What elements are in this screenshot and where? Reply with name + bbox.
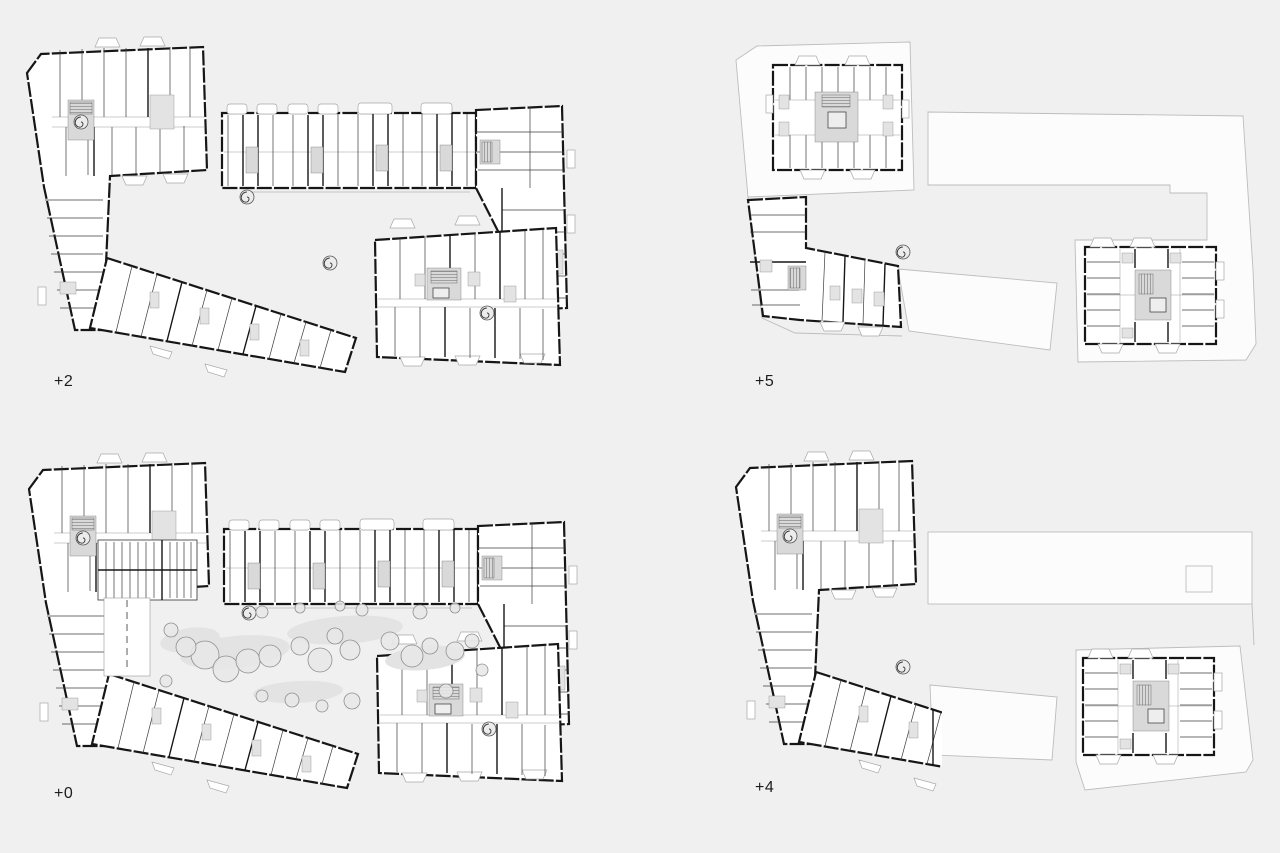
west-wing-remnant <box>748 197 901 336</box>
spiral-stair-icon <box>896 245 910 259</box>
floor-plan-plus-4: +4 <box>736 451 1254 796</box>
floor-label-plus-2: +2 <box>54 373 73 390</box>
storage-grid <box>98 540 197 600</box>
floor-label-plus-5: +5 <box>755 373 774 390</box>
roof-outline <box>928 532 1252 604</box>
tower-block <box>766 56 909 179</box>
floor-plans-sheet: +2 <box>0 0 1280 853</box>
floor-plans-drawing: +2 <box>0 0 1280 853</box>
floor-plan-plus-5: +5 <box>736 42 1256 390</box>
floor-label-plus-0: +0 <box>54 785 73 802</box>
roof-outline <box>930 685 1057 760</box>
spiral-stair-icon <box>323 256 337 270</box>
driveway <box>104 598 150 676</box>
floor-plan-plus-0: +0 <box>29 453 577 802</box>
floor-label-plus-4: +4 <box>755 779 774 796</box>
roof-outline <box>898 269 1057 350</box>
floor-plan-plus-2: +2 <box>27 37 575 390</box>
spiral-stair-icon <box>896 660 910 674</box>
